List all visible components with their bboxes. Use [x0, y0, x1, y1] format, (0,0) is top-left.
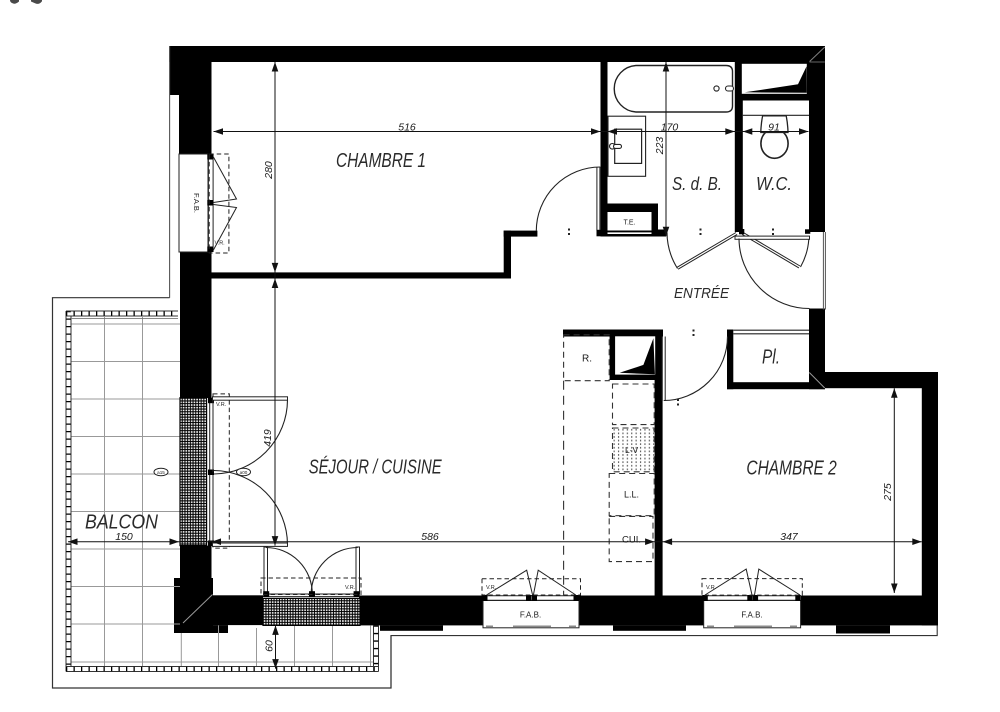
svg-text:a00: a00 — [240, 470, 248, 475]
svg-text:91: 91 — [768, 122, 780, 134]
svg-text:a15: a15 — [157, 470, 165, 475]
svg-text:280: 280 — [263, 161, 275, 180]
svg-text:R.: R. — [582, 354, 592, 365]
svg-text:CUI.: CUI. — [622, 535, 641, 546]
svg-text:60: 60 — [264, 640, 276, 652]
svg-text:F.A.B.: F.A.B. — [520, 611, 541, 620]
svg-text:275: 275 — [882, 483, 894, 502]
svg-text:170: 170 — [661, 121, 679, 133]
svg-text:Pl.: Pl. — [762, 347, 780, 369]
svg-text:419: 419 — [262, 429, 274, 447]
svg-text:V.R.: V.R. — [706, 585, 717, 591]
svg-text:150: 150 — [115, 531, 133, 543]
svg-text:CHAMBRE 1: CHAMBRE 1 — [336, 150, 426, 172]
svg-text:S. d. B.: S. d. B. — [672, 174, 722, 194]
svg-text:586: 586 — [421, 531, 439, 543]
svg-text:L-V: L-V — [625, 445, 639, 455]
svg-text:BALCON: BALCON — [85, 512, 158, 534]
svg-text:V.R.: V.R. — [216, 402, 227, 408]
svg-text:347: 347 — [780, 531, 799, 543]
svg-text:F.A.B.: F.A.B. — [192, 193, 201, 213]
svg-text:F.A.B.: F.A.B. — [741, 611, 762, 620]
svg-text:516: 516 — [398, 121, 416, 133]
svg-text:L.L.: L.L. — [624, 490, 639, 500]
svg-text:T.E.: T.E. — [623, 220, 635, 227]
svg-text:W.C.: W.C. — [756, 174, 792, 194]
svg-text:V.R.: V.R. — [486, 585, 497, 591]
svg-text:V.R.: V.R. — [345, 585, 356, 591]
svg-text:ENTRÉE: ENTRÉE — [674, 285, 729, 302]
svg-text:CHAMBRE 2: CHAMBRE 2 — [746, 458, 836, 480]
svg-text:223: 223 — [654, 137, 666, 156]
svg-text:SÉJOUR / CUISINE: SÉJOUR / CUISINE — [309, 456, 442, 479]
